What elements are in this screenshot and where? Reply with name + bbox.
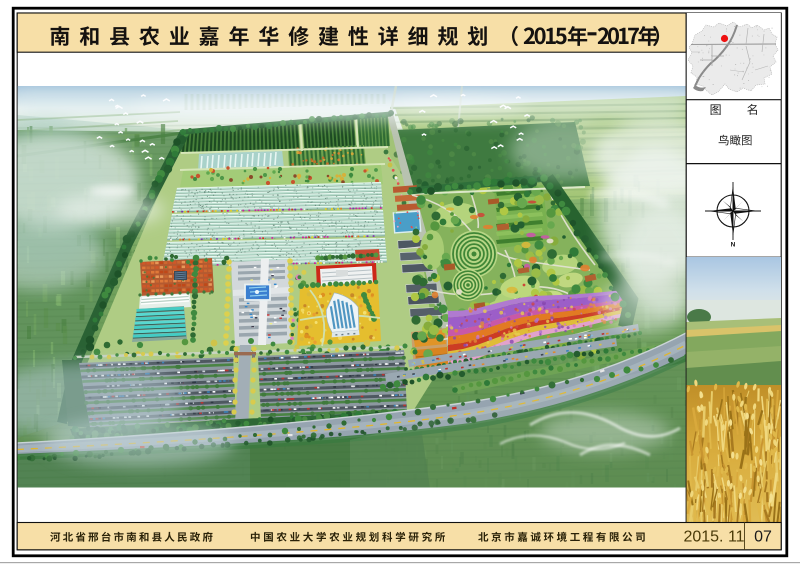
svg-text:N: N <box>731 242 736 249</box>
svg-text:2015. 11: 2015. 11 <box>683 529 744 546</box>
svg-text:07: 07 <box>754 529 772 546</box>
